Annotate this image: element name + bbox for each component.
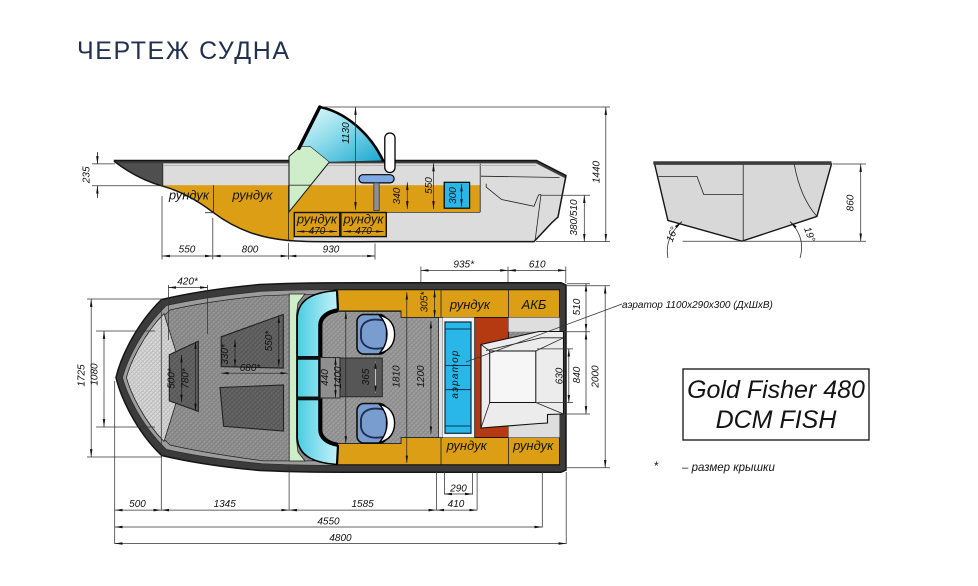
svg-text:340: 340 xyxy=(392,187,403,204)
svg-text:4800: 4800 xyxy=(329,533,352,544)
svg-text:1810: 1810 xyxy=(392,365,403,388)
svg-text:300: 300 xyxy=(448,187,459,204)
svg-text:– размер крышки: – размер крышки xyxy=(681,462,775,474)
svg-text:1725: 1725 xyxy=(77,364,88,387)
svg-text:550*: 550* xyxy=(264,330,275,352)
svg-text:аэратор 1100х290х300 (ДхШхВ): аэратор 1100х290х300 (ДхШхВ) xyxy=(622,300,773,311)
svg-text:1200: 1200 xyxy=(416,365,427,388)
svg-text:290: 290 xyxy=(449,484,467,495)
svg-text:Gold Fisher 480: Gold Fisher 480 xyxy=(687,376,865,404)
svg-text:860: 860 xyxy=(846,194,857,211)
svg-text:500: 500 xyxy=(129,499,146,510)
svg-text:рундук: рундук xyxy=(446,438,488,453)
svg-text:440: 440 xyxy=(320,369,331,386)
svg-text:630: 630 xyxy=(555,367,566,384)
svg-text:4550: 4550 xyxy=(317,517,340,528)
svg-text:рундук: рундук xyxy=(512,438,554,453)
svg-text:510: 510 xyxy=(572,298,583,315)
svg-text:1440: 1440 xyxy=(592,160,603,183)
svg-text:АКБ: АКБ xyxy=(521,297,547,312)
svg-text:рундук: рундук xyxy=(231,188,273,203)
svg-text:330*: 330* xyxy=(220,343,231,365)
svg-text:235: 235 xyxy=(82,166,93,184)
svg-text:аэратор: аэратор xyxy=(450,349,461,398)
svg-text:DCM FISH: DCM FISH xyxy=(716,406,838,434)
svg-text:380/510: 380/510 xyxy=(569,199,580,236)
svg-text:ЧЕРТЕЖ СУДНА: ЧЕРТЕЖ СУДНА xyxy=(77,37,291,65)
svg-text:1130: 1130 xyxy=(341,122,352,144)
svg-text:рундук: рундук xyxy=(449,297,491,312)
svg-text:365: 365 xyxy=(361,368,372,385)
svg-text:930: 930 xyxy=(323,245,340,256)
svg-text:935*: 935* xyxy=(453,259,475,270)
svg-text:550: 550 xyxy=(424,177,435,194)
svg-text:*: * xyxy=(654,459,659,473)
svg-text:500*: 500* xyxy=(167,367,178,389)
svg-text:780*: 780* xyxy=(181,367,192,389)
svg-text:1585: 1585 xyxy=(351,499,374,510)
svg-text:800: 800 xyxy=(242,245,259,256)
svg-text:1400: 1400 xyxy=(333,366,344,389)
svg-text:рундук: рундук xyxy=(168,188,210,203)
svg-text:610: 610 xyxy=(529,259,546,270)
svg-text:680*: 680* xyxy=(240,363,262,374)
svg-text:1345: 1345 xyxy=(214,499,237,510)
svg-text:840: 840 xyxy=(572,366,583,383)
svg-text:1080: 1080 xyxy=(90,363,101,386)
svg-text:550: 550 xyxy=(179,245,196,256)
svg-text:рундук: рундук xyxy=(296,212,338,227)
svg-text:410: 410 xyxy=(448,499,465,510)
svg-text:2000: 2000 xyxy=(591,365,602,389)
svg-text:305*: 305* xyxy=(420,291,431,313)
svg-text:420*: 420* xyxy=(177,277,199,288)
svg-text:рундук: рундук xyxy=(342,212,384,227)
